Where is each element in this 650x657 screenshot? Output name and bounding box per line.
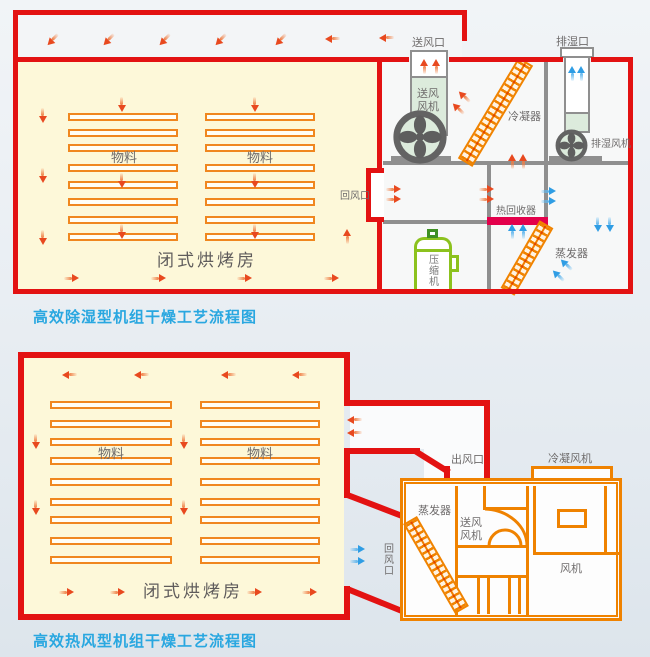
room2-left-border — [18, 352, 24, 620]
shelf — [68, 129, 178, 137]
shelf — [205, 113, 315, 121]
air-outlet-right — [484, 400, 490, 480]
shelf — [200, 420, 320, 428]
fan-box-floor — [533, 552, 619, 555]
shelf — [50, 537, 172, 545]
shelf — [50, 498, 172, 506]
shelf — [68, 181, 178, 189]
exhaust-fan-label: 排湿风机 — [591, 139, 631, 151]
fan-box-left — [533, 486, 536, 555]
air-outlet-label: 出风口 — [451, 454, 484, 467]
corridor-top-border — [13, 10, 467, 15]
supply-outlet-label: 送风口 — [412, 37, 445, 50]
shelf — [205, 216, 315, 224]
exhaust-fan-icon — [555, 129, 588, 162]
supply-fan-label: 送风 风机 — [417, 88, 439, 113]
compressor-label: 压缩机 — [426, 254, 438, 287]
compressor-cap — [427, 229, 438, 238]
shelf — [200, 498, 320, 506]
shelf — [200, 516, 320, 524]
shelf — [68, 198, 178, 206]
condenser-fan-label: 冷凝风机 — [548, 453, 592, 466]
shelf — [200, 401, 320, 409]
room-label-top: 闭式烘烤房 — [157, 251, 257, 271]
compressor-band — [417, 249, 449, 252]
fan-label: 风机 — [560, 563, 582, 576]
shelf — [200, 438, 320, 446]
shelf — [68, 113, 178, 121]
air-outlet-duct — [350, 406, 484, 449]
compressor-port — [449, 255, 459, 272]
left-border-top-diagram — [13, 10, 18, 294]
shelf — [50, 420, 172, 428]
caption-bottom: 高效热风型机组干燥工艺流程图 — [33, 630, 257, 651]
fan-box-right — [604, 486, 607, 555]
room2-bottom-border — [18, 614, 350, 620]
shelf — [68, 233, 178, 241]
machinery-divider-right — [544, 62, 548, 224]
room-right-wall-lower — [377, 218, 382, 294]
shelf — [50, 438, 172, 446]
caption-top: 高效除湿型机组干燥工艺流程图 — [33, 306, 257, 327]
return-air-label-bottom: 回风口 — [381, 543, 393, 576]
condenser-label: 冷凝器 — [508, 111, 541, 124]
shelf — [205, 233, 315, 241]
material-label-bottom-left: 物料 — [98, 447, 124, 462]
supply-fan-icon — [392, 109, 448, 165]
shelf — [205, 181, 315, 189]
shelf — [50, 516, 172, 524]
top-air-corridor — [18, 15, 462, 59]
room-label-bottom: 闭式烘烤房 — [143, 582, 243, 602]
shelf — [68, 216, 178, 224]
air-outlet-bottom — [344, 448, 420, 454]
exhaust-outlet-label: 排湿口 — [556, 36, 589, 49]
machinery-divider-left — [487, 163, 491, 289]
return-duct-top-diagonal — [346, 492, 404, 519]
material-label-bottom-right: 物料 — [247, 447, 273, 462]
supply-fan-label-bottom: 送风 风机 — [460, 517, 482, 542]
room2-right-wall-b — [344, 448, 350, 498]
room-top-border-c — [591, 57, 633, 62]
bottom-baking-room — [24, 358, 344, 614]
shelf — [205, 129, 315, 137]
heat-recovery-label: 热回收器 — [496, 206, 536, 218]
blue-flow-arrow-icon — [350, 545, 365, 554]
shelf — [205, 198, 315, 206]
shelf — [200, 537, 320, 545]
shelf — [50, 401, 172, 409]
room2-top-border — [18, 352, 350, 358]
room-right-wall-upper — [377, 57, 382, 172]
room-top-border-b — [449, 57, 563, 62]
right-border-top-diagram — [628, 57, 633, 294]
evaporator-label-top: 蒸发器 — [555, 248, 588, 261]
shelf — [50, 556, 172, 564]
shelf — [200, 556, 320, 564]
machinery-midfloor-line — [383, 220, 489, 224]
exhaust-duct-cap — [560, 47, 594, 58]
supply-outlet-duct — [410, 50, 448, 78]
material-label-top-right: 物料 — [247, 151, 273, 166]
fan-motor-box — [557, 509, 587, 528]
material-label-top-left: 物料 — [111, 151, 137, 166]
return-duct-bottom-diagonal — [346, 586, 404, 614]
shelf — [50, 478, 172, 486]
evaporator-label-bottom: 蒸发器 — [418, 505, 451, 518]
air-outlet-top — [344, 400, 490, 406]
corridor-right-border — [462, 10, 467, 41]
return-air-label-top: 回风口 — [340, 191, 370, 203]
supply-fan-scroll — [456, 486, 528, 616]
compressor: 压缩机 — [414, 237, 452, 291]
process-flow-diagrams: 压缩机 送风口 送风 风机 冷凝器 排湿口 排湿风机 回风口 热回收器 蒸发器 … — [0, 0, 650, 657]
blue-flow-arrow-icon — [350, 557, 365, 566]
room2-right-wall-a — [344, 352, 350, 405]
room-top-border-a — [13, 57, 409, 62]
shelf — [200, 478, 320, 486]
bottom-border-top-diagram — [13, 289, 633, 294]
